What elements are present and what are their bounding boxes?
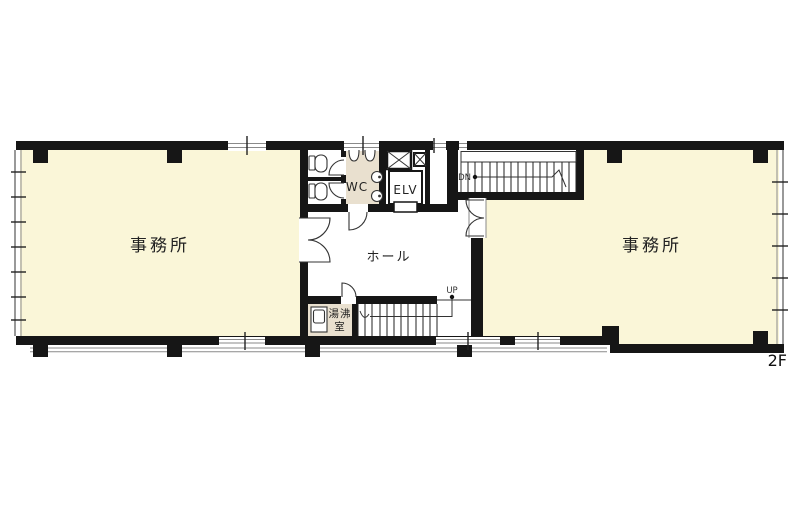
hall-office-left-double-door <box>299 218 330 262</box>
floor-number-label: 2F <box>768 351 787 370</box>
kitchenette-label-line1: 湯沸 <box>329 307 352 320</box>
wc-entrance-door <box>348 204 368 230</box>
elevator-shaft: ELV <box>387 151 426 212</box>
office-right-double-door <box>466 198 486 238</box>
office-right-label: 事務所 <box>622 236 682 256</box>
kitchenette-door <box>341 283 356 304</box>
kitchenette-sink-unit <box>311 307 327 332</box>
floor-plan-drawing: DN UP <box>0 0 800 512</box>
urinal <box>365 150 375 161</box>
elevator-door <box>394 202 417 212</box>
toilet-tank <box>309 184 315 198</box>
elevator-label: ELV <box>393 183 417 197</box>
wc-label: WC <box>346 180 368 194</box>
stairs-down: DN <box>458 152 576 193</box>
stairs-up: UP <box>358 286 471 336</box>
toilet-bowl <box>315 155 327 172</box>
stair-down-start-dot <box>473 175 477 179</box>
kitchenette-label-line2: 室 <box>334 320 346 333</box>
duct-box-icon <box>387 151 411 169</box>
toilet-bowl <box>315 183 327 200</box>
office-left-label: 事務所 <box>130 236 190 256</box>
duct-box-icon <box>414 153 426 166</box>
stair-up-label: UP <box>446 286 457 296</box>
hall-label: ホール <box>366 250 411 265</box>
stair-down-label: DN <box>458 173 471 183</box>
floor-plan-page: DN UP <box>0 0 800 512</box>
toilet-tank <box>309 156 315 170</box>
urinal <box>349 150 359 161</box>
